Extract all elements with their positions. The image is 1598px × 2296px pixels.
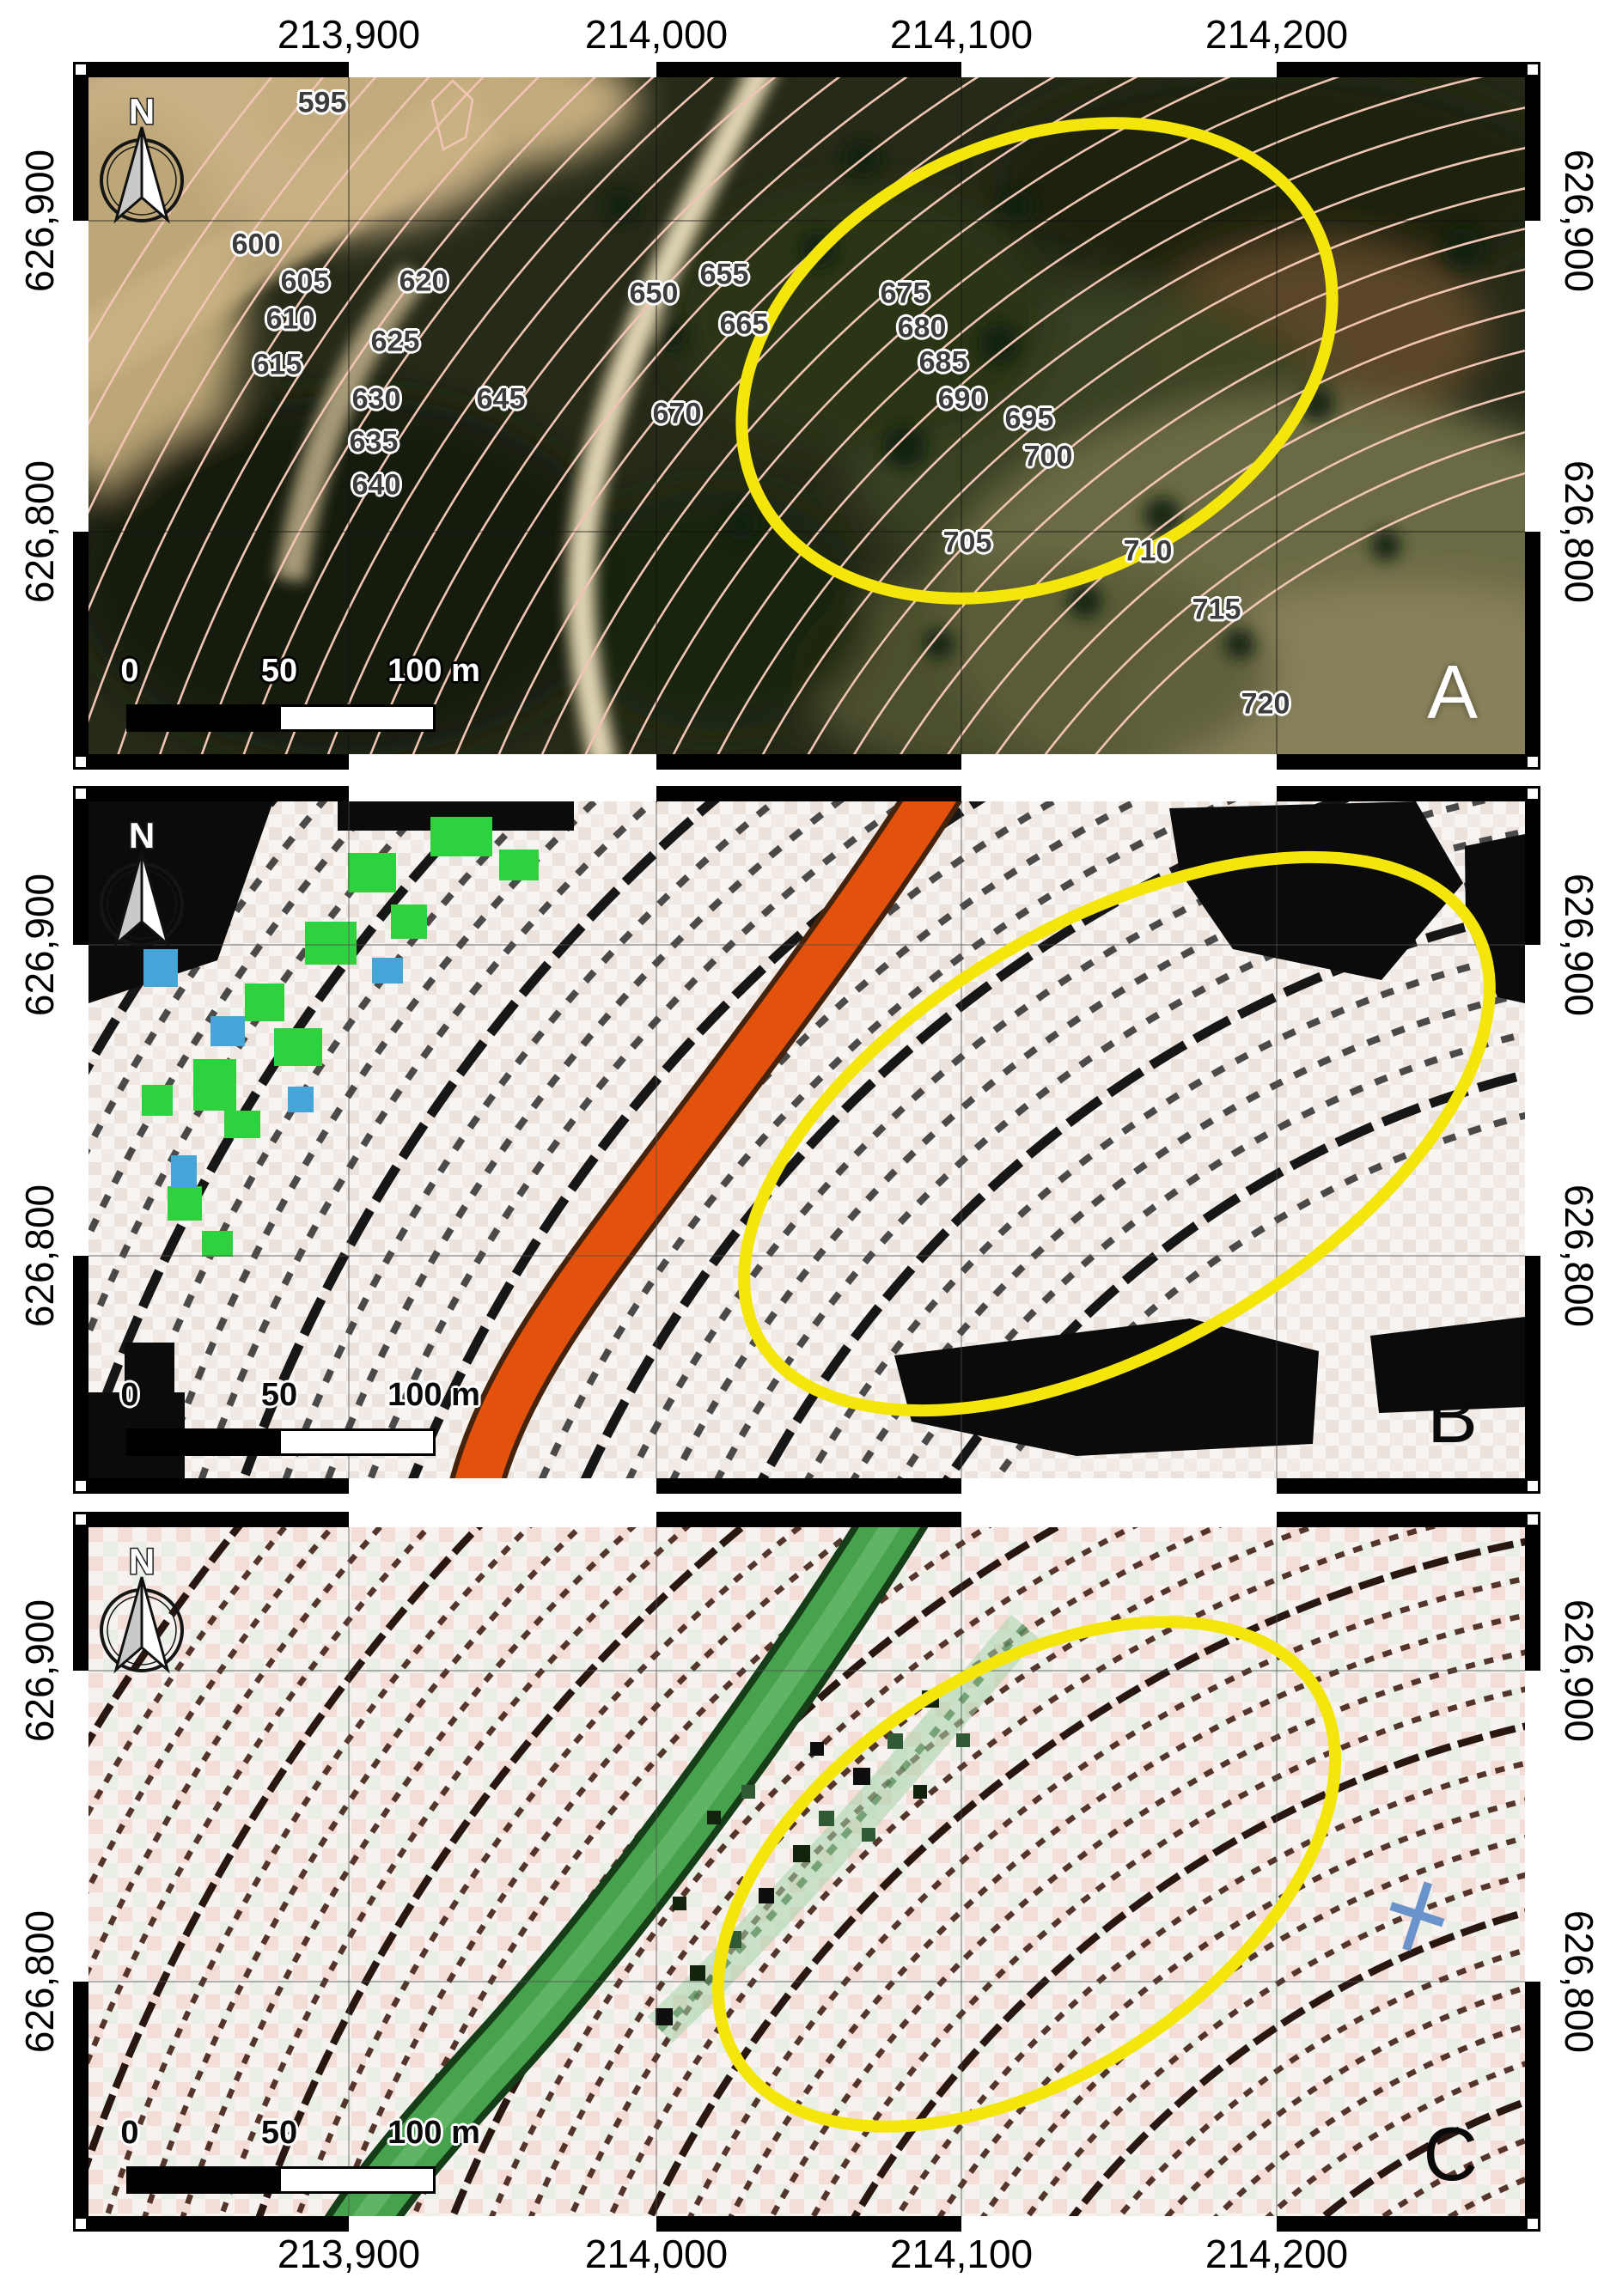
contour-label-625: 625	[371, 326, 420, 359]
scale-bar: 0 50 100 m	[114, 1377, 518, 1456]
scale-bar: 0 50 100 m	[114, 653, 518, 732]
scale-label-0: 0	[120, 1377, 138, 1414]
scale-label-50: 50	[261, 2115, 297, 2152]
axis-label-y-left-1-0: 626,900	[16, 874, 63, 1016]
contour-label-630: 630	[352, 383, 401, 417]
frame-corner	[1525, 2216, 1540, 2232]
scale-bar-graphic	[126, 1428, 436, 1456]
contour-label-715: 715	[1192, 594, 1241, 627]
axis-label-y-left-1-1: 626,800	[16, 1185, 63, 1327]
scale-bar-graphic	[126, 704, 436, 732]
scale-label-50: 50	[261, 1377, 297, 1414]
scale-label-0: 0	[120, 653, 138, 690]
axis-label-x-top-3: 214,200	[1205, 11, 1348, 58]
contour-label-615: 615	[253, 349, 302, 382]
frame-tick-bar-bottom-c	[88, 2216, 1525, 2232]
frame-tick-bar-right-c	[1525, 1527, 1540, 2216]
contour-label-680: 680	[898, 312, 947, 345]
contour-label-720: 720	[1241, 688, 1290, 722]
frame-tick-bar-top-b	[88, 786, 1525, 801]
contour-label-695: 695	[1005, 403, 1054, 436]
frame-corner	[1525, 786, 1540, 801]
frame-tick-bar-right-a	[1525, 77, 1540, 754]
panel-letter-a: A	[1427, 655, 1478, 730]
contour-label-705: 705	[943, 527, 992, 560]
axis-label-x-bottom-1: 214,000	[585, 2231, 728, 2277]
scale-label-0: 0	[120, 2115, 138, 2152]
contour-label-655: 655	[700, 259, 749, 292]
frame-corner	[1525, 1478, 1540, 1494]
contour-label-650: 650	[630, 277, 679, 311]
frame-corner	[1525, 1512, 1540, 1527]
frame-tick-bar-left-c	[73, 1527, 88, 2216]
contour-label-710: 710	[1124, 535, 1173, 569]
frame-corner	[73, 2216, 88, 2232]
contour-label-605: 605	[281, 265, 330, 299]
north-label: N	[129, 815, 155, 856]
contour-label-670: 670	[653, 398, 702, 431]
frame-corner	[73, 62, 88, 77]
frame-tick-bar-top-c	[88, 1512, 1525, 1527]
frame-corner	[1525, 754, 1540, 770]
frame-corner	[73, 1512, 88, 1527]
axis-label-y-left-0-0: 626,900	[16, 149, 63, 292]
axis-label-y-left-2-0: 626,900	[16, 1599, 63, 1742]
axis-label-x-bottom-3: 214,200	[1205, 2231, 1348, 2277]
scale-label-100m: 100 m	[387, 1377, 480, 1414]
axis-label-x-bottom-2: 214,100	[890, 2231, 1033, 2277]
frame-corner	[73, 1478, 88, 1494]
axis-label-x-top-2: 214,100	[890, 11, 1033, 58]
axis-label-y-left-0-1: 626,800	[16, 460, 63, 603]
contour-label-645: 645	[477, 383, 526, 417]
raster-c: N	[88, 1527, 1525, 2216]
axis-label-y-right-1-0: 626,900	[1556, 874, 1598, 1016]
contour-label-640: 640	[352, 469, 401, 502]
frame-tick-bar-left-b	[73, 801, 88, 1478]
panel-letter-c: C	[1423, 2116, 1478, 2192]
contour-label-610: 610	[266, 303, 315, 337]
axis-label-y-left-2-1: 626,800	[16, 1910, 63, 2053]
axis-label-y-right-2-1: 626,800	[1556, 1910, 1598, 2053]
contour-label-700: 700	[1024, 441, 1073, 474]
map-panel-c: N 0 50 100 m C	[88, 1527, 1525, 2216]
contour-label-690: 690	[938, 383, 987, 417]
map-figure: N 59560060561061562062563063564064565065…	[0, 0, 1598, 2296]
contour-label-600: 600	[232, 228, 281, 262]
contour-label-635: 635	[350, 426, 399, 460]
axis-label-y-right-1-1: 626,800	[1556, 1185, 1598, 1327]
scale-bar: 0 50 100 m	[114, 2115, 518, 2194]
contour-label-595: 595	[298, 87, 347, 120]
axis-label-y-right-2-0: 626,900	[1556, 1599, 1598, 1742]
axis-label-x-top-0: 213,900	[278, 11, 420, 58]
contour-label-620: 620	[399, 265, 448, 299]
frame-tick-bar-bottom-b	[88, 1478, 1525, 1494]
axis-label-y-right-0-0: 626,900	[1556, 149, 1598, 292]
frame-corner	[1525, 62, 1540, 77]
north-label: N	[129, 91, 155, 131]
contour-label-675: 675	[881, 277, 930, 311]
map-panel-b: N 0 50 100 m B	[88, 801, 1525, 1478]
north-label: N	[129, 1541, 155, 1581]
axis-label-y-right-0-1: 626,800	[1556, 460, 1598, 603]
scale-label-50: 50	[261, 653, 297, 690]
scale-label-100m: 100 m	[387, 653, 480, 690]
scale-bar-graphic	[126, 2166, 436, 2194]
contour-label-685: 685	[919, 346, 968, 380]
frame-corner	[73, 754, 88, 770]
frame-tick-bar-bottom-a	[88, 754, 1525, 770]
axis-label-x-top-1: 214,000	[585, 11, 728, 58]
frame-corner	[73, 786, 88, 801]
axis-label-x-bottom-0: 213,900	[278, 2231, 420, 2277]
contour-label-665: 665	[720, 308, 769, 342]
frame-tick-bar-right-b	[1525, 801, 1540, 1478]
panel-letter-b: B	[1427, 1379, 1478, 1454]
map-panel-a: N 59560060561061562062563063564064565065…	[88, 77, 1525, 754]
frame-tick-bar-top-a	[88, 62, 1525, 77]
scale-label-100m: 100 m	[387, 2115, 480, 2152]
frame-tick-bar-left-a	[73, 77, 88, 754]
